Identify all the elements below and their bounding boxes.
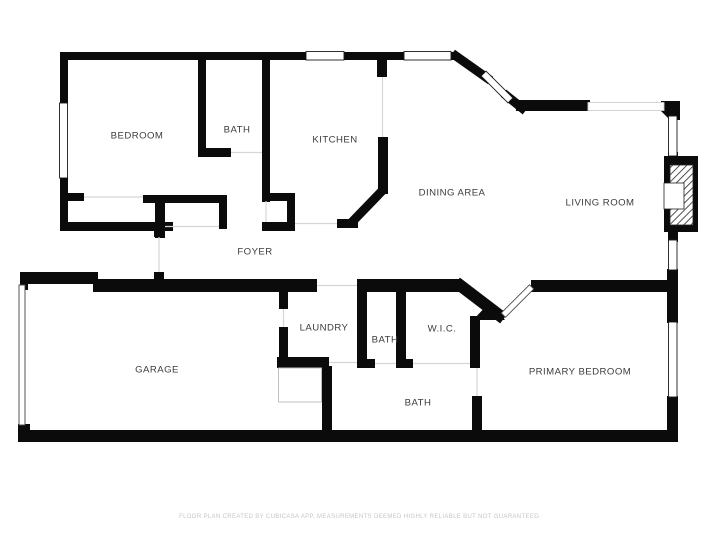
garage-door xyxy=(19,285,25,425)
window-diagonal xyxy=(481,71,513,103)
disclaimer-text: FLOOR PLAN CREATED BY CUBICASA APP. MEAS… xyxy=(0,514,720,520)
room-label-wic: W.I.C. xyxy=(428,324,457,335)
floor-plan: BEDROOM BATH KITCHEN DINING AREA LIVING … xyxy=(0,0,720,540)
primary-bedroom-door xyxy=(501,285,534,318)
room-label-bedroom: BEDROOM xyxy=(111,131,164,142)
room-label-laundry: LAUNDRY xyxy=(300,323,349,334)
room-label-foyer: FOYER xyxy=(237,247,272,258)
utility-pad xyxy=(279,368,322,402)
window-livingroom-right-1 xyxy=(669,116,678,156)
room-label-kitchen: KITCHEN xyxy=(312,135,357,146)
room-label-bath-top: BATH xyxy=(224,125,251,136)
room-label-living-room: LIVING ROOM xyxy=(566,198,635,209)
room-label-bath-lower: BATH xyxy=(405,398,432,409)
floor-plan-drawing xyxy=(0,0,720,540)
room-label-dining-area: DINING AREA xyxy=(419,188,486,199)
fireplace xyxy=(664,156,698,232)
room-label-garage: GARAGE xyxy=(135,365,179,376)
window-dining-top xyxy=(404,52,451,61)
window-bedroom-left xyxy=(60,103,68,178)
walls xyxy=(18,52,680,442)
window-kitchen-top-1 xyxy=(306,52,344,61)
window-livingroom-top-wide xyxy=(588,103,664,111)
room-label-primary-bedroom: PRIMARY BEDROOM xyxy=(529,367,631,378)
window-primary-right xyxy=(669,322,678,397)
room-label-bath-small: BATH xyxy=(372,335,399,346)
window-livingroom-right-2 xyxy=(669,240,678,270)
